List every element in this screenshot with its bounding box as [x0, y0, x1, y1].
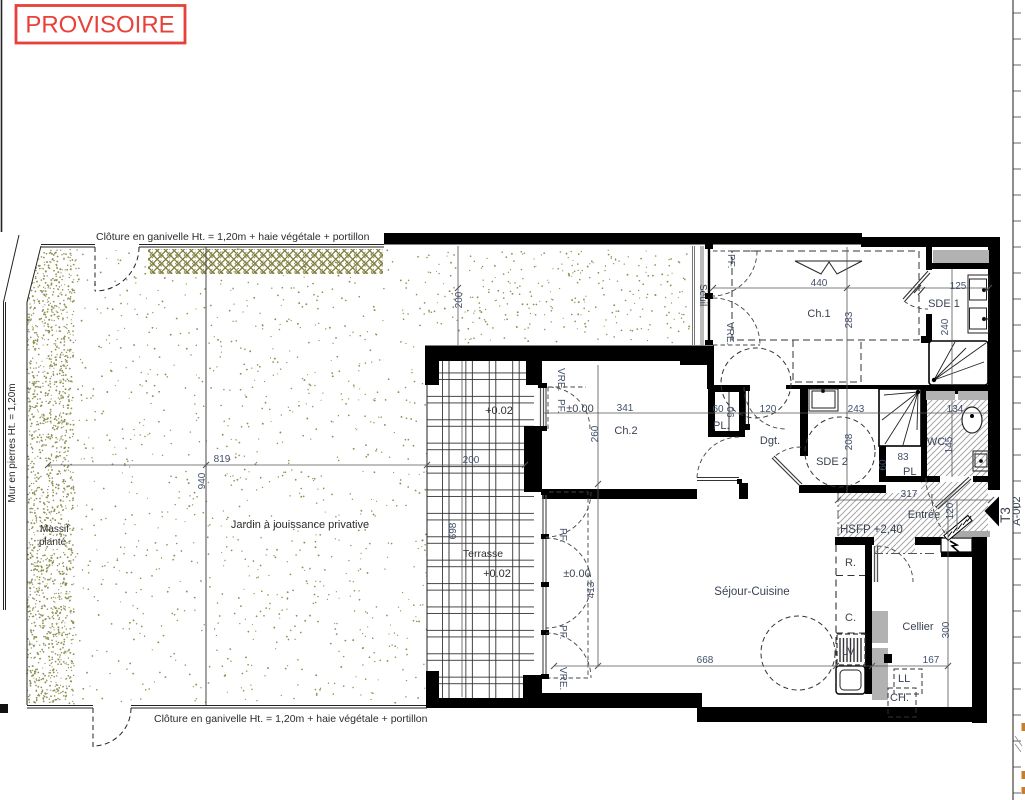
- svg-text:PF.: PF.: [725, 254, 736, 268]
- svg-text:134: 134: [947, 404, 964, 415]
- svg-text:Dgt.: Dgt.: [760, 435, 780, 447]
- svg-text:Ch.2: Ch.2: [614, 425, 637, 437]
- svg-text:PF.: PF.: [555, 399, 566, 413]
- svg-text:243: 243: [848, 404, 865, 415]
- svg-text:Massif: Massif: [40, 524, 69, 535]
- svg-text:PROVISOIRE: PROVISOIRE: [25, 12, 174, 39]
- svg-text:90: 90: [726, 406, 737, 418]
- svg-text:819: 819: [214, 454, 231, 465]
- svg-text:260: 260: [590, 425, 601, 442]
- svg-text:208: 208: [844, 433, 855, 450]
- svg-text:440: 440: [811, 278, 828, 289]
- svg-text:240: 240: [940, 318, 951, 335]
- svg-text:200: 200: [463, 455, 480, 466]
- svg-text:698: 698: [448, 522, 459, 539]
- svg-text:Séjour-Cuisine: Séjour-Cuisine: [714, 586, 789, 598]
- svg-text:200: 200: [454, 291, 465, 308]
- svg-text:317: 317: [901, 489, 918, 500]
- svg-text:SDE 1: SDE 1: [928, 298, 960, 310]
- svg-text:PL.: PL.: [713, 420, 730, 432]
- svg-text:Cellier: Cellier: [902, 621, 934, 633]
- svg-text:Terrasse: Terrasse: [463, 548, 503, 560]
- svg-text:60: 60: [878, 459, 889, 471]
- svg-text:A-002: A-002: [1011, 496, 1023, 525]
- svg-text:Entrée: Entrée: [908, 509, 940, 521]
- svg-text:C.: C.: [845, 612, 856, 624]
- svg-text:VRE.: VRE.: [557, 667, 568, 690]
- svg-text:Ch.1: Ch.1: [807, 308, 830, 320]
- svg-text:VRE.: VRE.: [724, 322, 735, 345]
- svg-text:283: 283: [844, 311, 855, 328]
- svg-text:300: 300: [941, 621, 952, 638]
- svg-text:341: 341: [617, 403, 634, 414]
- svg-text:+0.02: +0.02: [485, 405, 513, 417]
- svg-text:120: 120: [760, 404, 777, 415]
- svg-text:413: 413: [586, 581, 597, 598]
- svg-text:83: 83: [897, 452, 909, 463]
- svg-text:WC: WC: [927, 436, 945, 448]
- svg-text:145: 145: [944, 436, 955, 453]
- svg-text:±0.00: ±0.00: [563, 568, 590, 580]
- svg-text:planté: planté: [39, 537, 67, 548]
- svg-text:LL: LL: [898, 673, 910, 685]
- svg-text:CH.: CH.: [890, 692, 909, 704]
- svg-text:PL: PL: [903, 466, 916, 478]
- svg-text:LV: LV: [842, 646, 855, 658]
- svg-text:940: 940: [197, 472, 208, 489]
- svg-text:+0.02: +0.02: [483, 568, 511, 580]
- svg-text:VRE.: VRE.: [555, 368, 566, 391]
- svg-text:Mur en pierres Ht. = 1,20m: Mur en pierres Ht. = 1,20m: [7, 383, 18, 502]
- svg-text:Clôture en ganivelle Ht. = 1,2: Clôture en ganivelle Ht. = 1,20m + haie …: [96, 231, 370, 243]
- svg-text:PF.: PF.: [557, 625, 568, 639]
- svg-text:120: 120: [945, 502, 956, 519]
- svg-text:60: 60: [712, 404, 724, 415]
- svg-text:668: 668: [697, 655, 714, 666]
- svg-text:Jardin à jouissance privative: Jardin à jouissance privative: [231, 519, 369, 531]
- svg-text:HSFP +2,40: HSFP +2,40: [840, 524, 903, 536]
- svg-text:PF.: PF.: [557, 528, 568, 542]
- svg-text:R.: R.: [845, 557, 856, 569]
- svg-text:125: 125: [950, 281, 967, 292]
- svg-text:SDE 2: SDE 2: [816, 456, 848, 468]
- svg-text:167: 167: [923, 655, 940, 666]
- svg-text:Clôture en ganivelle Ht. = 1,2: Clôture en ganivelle Ht. = 1,20m + haie …: [154, 713, 428, 725]
